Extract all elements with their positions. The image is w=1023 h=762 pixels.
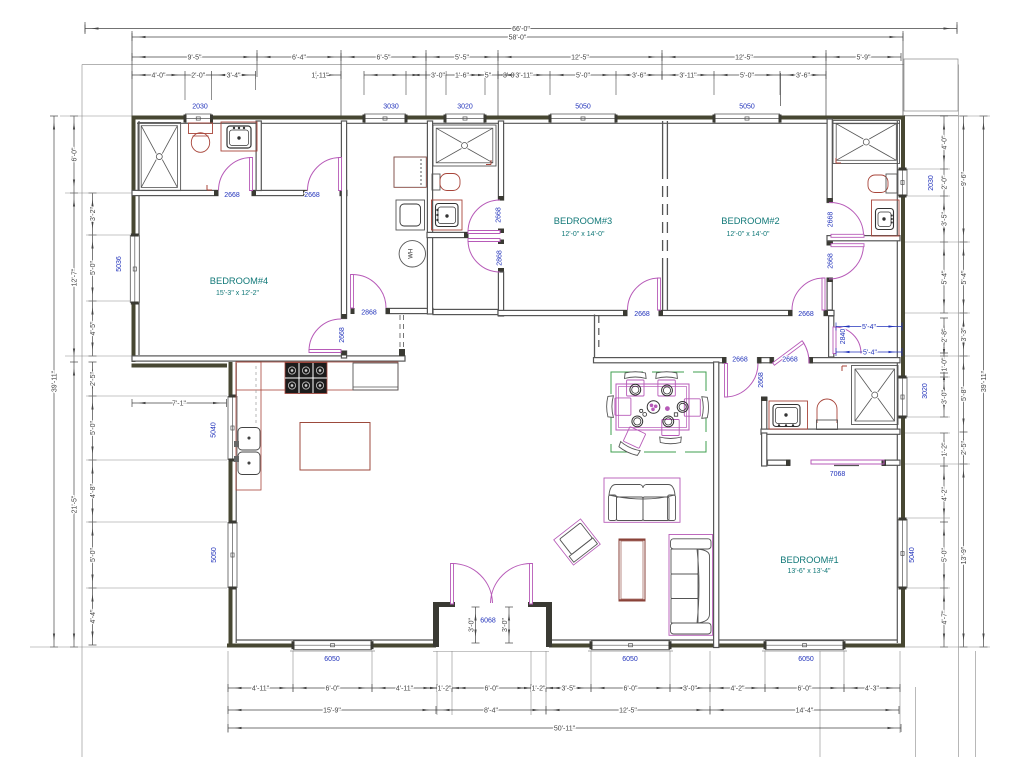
svg-text:3'-0": 3'-0" — [469, 618, 476, 632]
svg-text:2668: 2668 — [758, 372, 765, 388]
svg-text:5040: 5040 — [909, 547, 916, 563]
svg-text:2'-0": 2'-0" — [191, 73, 205, 80]
svg-text:6050: 6050 — [622, 656, 638, 663]
svg-text:2668: 2668 — [304, 192, 320, 199]
svg-text:5050: 5050 — [211, 547, 218, 563]
svg-text:13'-6" x 13'-4": 13'-6" x 13'-4" — [787, 568, 831, 575]
svg-text:5050: 5050 — [739, 104, 755, 111]
svg-text:6'-0": 6'-0" — [624, 686, 638, 693]
svg-text:12'-0" x 14'-0": 12'-0" x 14'-0" — [561, 231, 605, 238]
svg-text:WH: WH — [408, 249, 414, 259]
svg-text:2668: 2668 — [798, 311, 814, 318]
svg-text:6'-0": 6'-0" — [72, 147, 79, 161]
svg-text:2668: 2668 — [782, 357, 798, 364]
svg-text:3'-5": 3'-5" — [562, 686, 576, 693]
svg-text:7068: 7068 — [830, 471, 846, 478]
svg-text:2668: 2668 — [224, 192, 240, 199]
svg-text:4'-11": 4'-11" — [396, 686, 414, 693]
svg-text:5'-4": 5'-4" — [863, 350, 877, 357]
svg-text:9'-5": 9'-5" — [188, 55, 202, 62]
svg-text:1'-6": 1'-6" — [455, 73, 469, 80]
svg-text:2668: 2668 — [339, 327, 346, 343]
svg-text:3020: 3020 — [457, 104, 473, 111]
svg-text:5'-0": 5'-0" — [942, 548, 949, 562]
svg-text:2840: 2840 — [840, 329, 847, 345]
svg-text:BEDROOM#3: BEDROOM#3 — [554, 216, 612, 226]
svg-text:5'-8": 5'-8" — [961, 387, 968, 401]
svg-text:5'-4": 5'-4" — [942, 270, 949, 284]
svg-text:5'-9": 5'-9" — [857, 55, 871, 62]
svg-text:5": 5" — [485, 73, 492, 80]
svg-text:3'-6": 3'-6" — [632, 73, 646, 80]
svg-text:5'-5": 5'-5" — [455, 55, 469, 62]
svg-text:3'-0": 3'-0" — [431, 73, 445, 80]
svg-text:1'-2": 1'-2" — [532, 686, 546, 693]
svg-text:5'-0": 5'-0" — [90, 421, 97, 435]
svg-text:3'-3": 3'-3" — [961, 327, 968, 341]
svg-text:9'-6": 9'-6" — [961, 172, 968, 186]
svg-text:4'-2": 4'-2" — [731, 686, 745, 693]
svg-text:4'-11": 4'-11" — [252, 686, 270, 693]
svg-text:6'-0": 6'-0" — [485, 686, 499, 693]
svg-text:1'-2": 1'-2" — [942, 442, 949, 456]
svg-text:3'-6": 3'-6" — [796, 73, 810, 80]
svg-text:2'-0": 2'-0" — [942, 175, 949, 189]
svg-text:4'-8": 4'-8" — [90, 484, 97, 498]
svg-text:5'-0": 5'-0" — [90, 548, 97, 562]
svg-text:13'-9": 13'-9" — [961, 546, 968, 564]
svg-text:39'-11": 39'-11" — [981, 370, 988, 392]
svg-text:58'-0": 58'-0" — [509, 35, 527, 42]
svg-text:1'-11": 1'-11" — [311, 73, 329, 80]
svg-text:5'-4": 5'-4" — [961, 270, 968, 284]
svg-text:6'-0": 6'-0" — [798, 686, 812, 693]
svg-text:4'-0": 4'-0" — [942, 135, 949, 149]
svg-text:1'-2": 1'-2" — [438, 686, 452, 693]
svg-text:12'-5": 12'-5" — [571, 55, 589, 62]
svg-text:12'-5": 12'-5" — [735, 55, 753, 62]
svg-text:3'-0": 3'-0" — [502, 618, 509, 632]
svg-text:3'-11": 3'-11" — [515, 73, 533, 80]
svg-text:12'-0" x 14'-0": 12'-0" x 14'-0" — [726, 231, 770, 238]
svg-text:3'-5": 3'-5" — [942, 212, 949, 226]
svg-text:3'-2": 3'-2" — [90, 207, 97, 221]
svg-text:3020: 3020 — [922, 383, 929, 399]
svg-text:12'-7": 12'-7" — [72, 268, 79, 286]
svg-text:BEDROOM#4: BEDROOM#4 — [210, 276, 268, 286]
svg-text:BEDROOM#2: BEDROOM#2 — [721, 216, 779, 226]
svg-text:6050: 6050 — [798, 656, 814, 663]
svg-text:3'-0": 3'-0" — [683, 686, 697, 693]
svg-text:6'-4": 6'-4" — [292, 55, 306, 62]
svg-text:2668: 2668 — [828, 212, 835, 228]
svg-text:4'-0": 4'-0" — [152, 73, 166, 80]
svg-text:BEDROOM#1: BEDROOM#1 — [780, 555, 838, 565]
svg-text:4'-4": 4'-4" — [90, 609, 97, 623]
svg-text:2868: 2868 — [497, 250, 504, 266]
svg-text:3'-11": 3'-11" — [679, 73, 697, 80]
svg-text:5'-0": 5'-0" — [740, 73, 754, 80]
svg-text:5040: 5040 — [211, 422, 218, 438]
svg-text:6050: 6050 — [324, 656, 340, 663]
svg-text:3'-0": 3'-0" — [942, 390, 949, 404]
svg-text:2030: 2030 — [928, 175, 935, 191]
svg-text:5'-0": 5'-0" — [90, 261, 97, 275]
svg-text:50'-11": 50'-11" — [554, 726, 576, 733]
svg-text:2668: 2668 — [634, 311, 650, 318]
svg-text:5036: 5036 — [116, 256, 123, 272]
svg-text:4'-2": 4'-2" — [942, 487, 949, 501]
svg-text:2'-5": 2'-5" — [90, 372, 97, 386]
svg-text:2868: 2868 — [361, 310, 377, 317]
svg-text:15'-3" x 12'-2": 15'-3" x 12'-2" — [216, 290, 260, 297]
svg-text:15'-9": 15'-9" — [323, 708, 341, 715]
svg-text:4'-5": 4'-5" — [90, 321, 97, 335]
svg-text:2668: 2668 — [732, 357, 748, 364]
svg-text:2668: 2668 — [828, 253, 835, 269]
svg-text:39'-11": 39'-11" — [52, 370, 59, 392]
svg-text:2668: 2668 — [496, 207, 503, 223]
svg-text:66'-0": 66'-0" — [512, 26, 530, 33]
svg-text:6'-5": 6'-5" — [377, 55, 391, 62]
svg-text:1'-0": 1'-0" — [942, 357, 949, 371]
svg-text:12'-5": 12'-5" — [619, 708, 637, 715]
svg-text:2'-8": 2'-8" — [942, 328, 949, 342]
svg-text:7'-1": 7'-1" — [172, 401, 186, 408]
svg-text:8'-4": 8'-4" — [484, 708, 498, 715]
svg-text:3030: 3030 — [383, 104, 399, 111]
svg-text:4'-7": 4'-7" — [942, 610, 949, 624]
svg-text:6068: 6068 — [480, 618, 496, 625]
svg-text:2'-5": 2'-5" — [961, 441, 968, 455]
svg-text:5'-4": 5'-4" — [862, 324, 876, 331]
svg-text:14'-4": 14'-4" — [796, 708, 814, 715]
svg-text:2030: 2030 — [192, 104, 208, 111]
svg-text:4'-3": 4'-3" — [865, 686, 879, 693]
svg-text:3'-4": 3'-4" — [227, 73, 241, 80]
svg-text:6'-0": 6'-0" — [326, 686, 340, 693]
svg-text:5'-0": 5'-0" — [576, 73, 590, 80]
svg-text:21'-5": 21'-5" — [72, 495, 79, 513]
svg-text:5050: 5050 — [575, 104, 591, 111]
